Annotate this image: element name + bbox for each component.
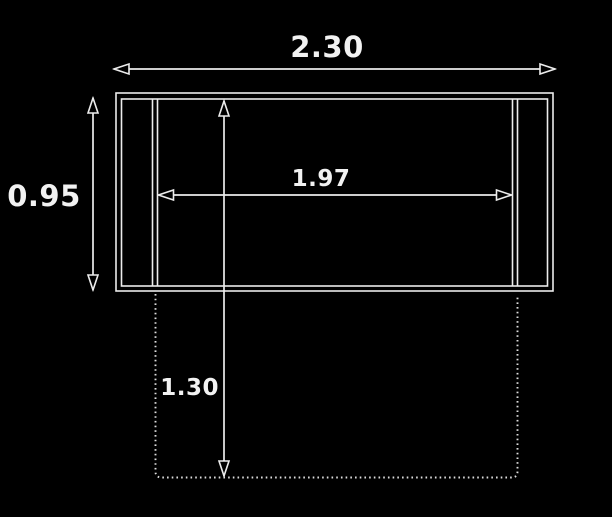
inner-width-dimension-label: 1.97 — [292, 166, 351, 192]
left-height-dimension-label: 0.95 — [7, 179, 81, 213]
background — [0, 0, 612, 517]
drawing-canvas: 2.30 0.95 1.97 1.30 — [0, 0, 612, 517]
top-width-dimension-label: 2.30 — [290, 30, 364, 64]
dimension-drawing: 2.30 0.95 1.97 1.30 — [0, 0, 612, 517]
lower-depth-dimension-label: 1.30 — [160, 375, 219, 401]
